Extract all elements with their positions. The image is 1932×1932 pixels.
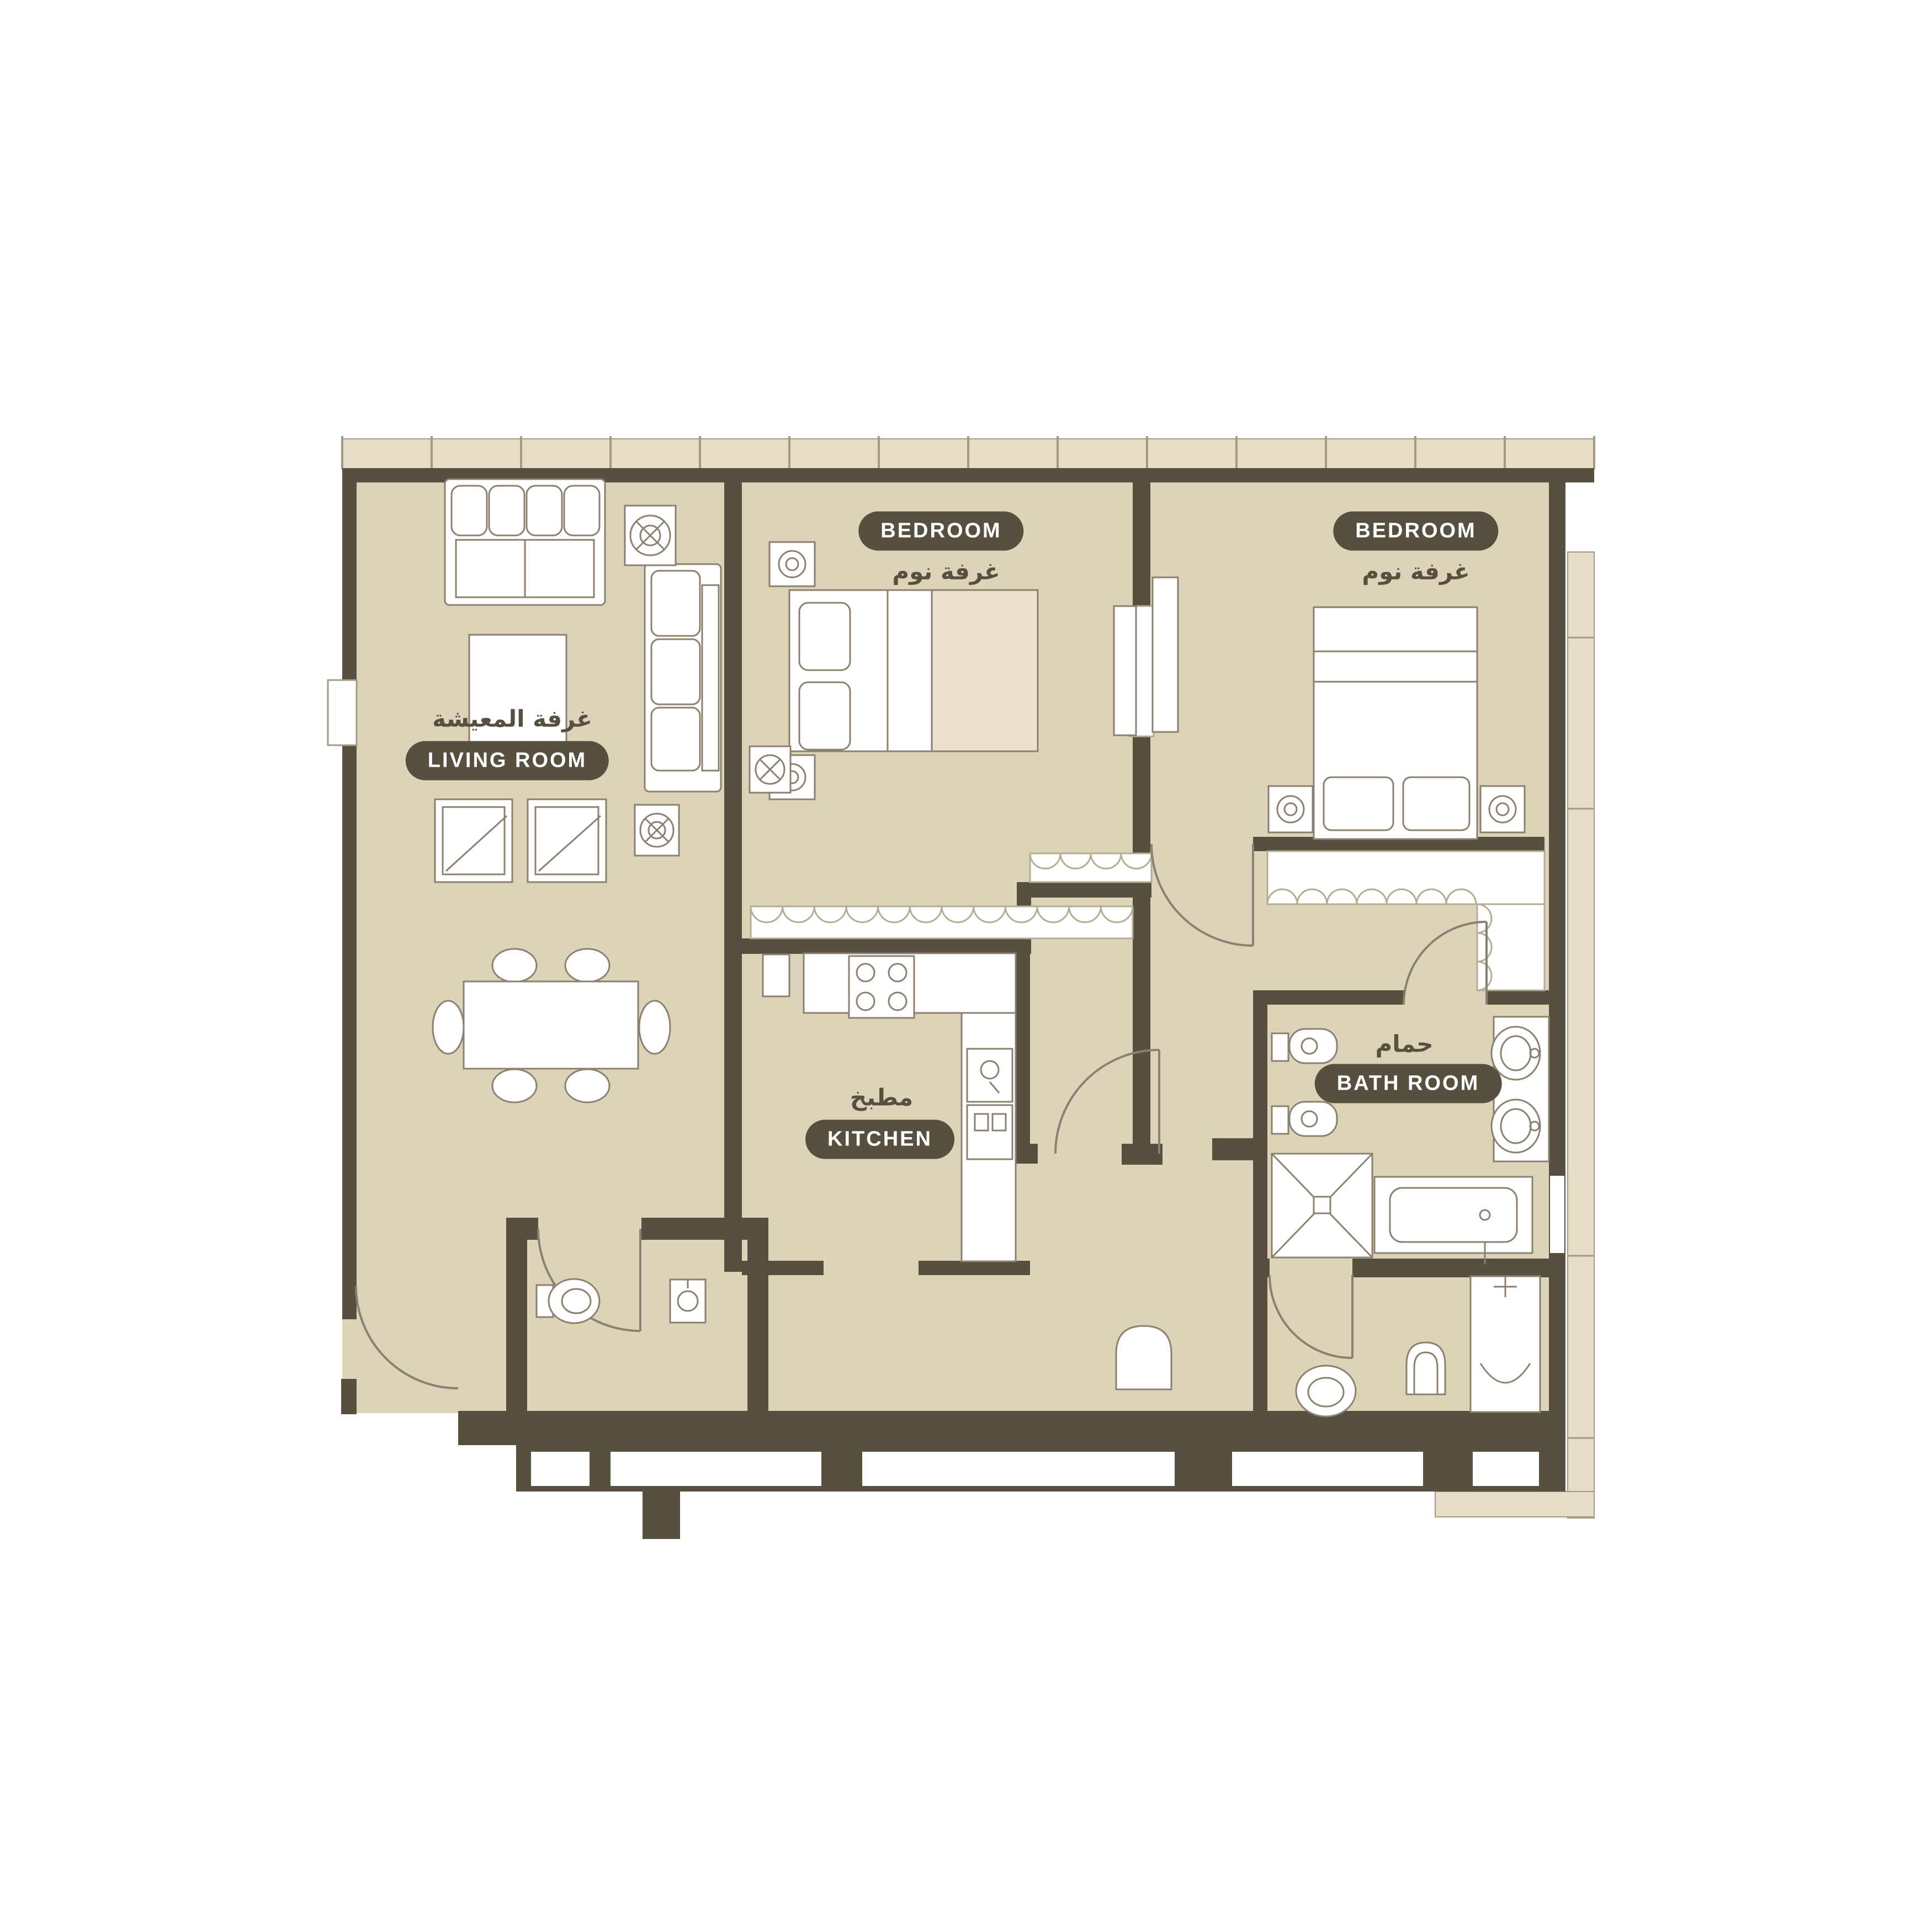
wall-hall-stub bbox=[1212, 1138, 1254, 1160]
wall-bedroom1-bottom-west bbox=[742, 938, 1031, 954]
armchair bbox=[528, 799, 606, 882]
toilet-icon bbox=[1272, 1029, 1337, 1063]
wall-bottom-step bbox=[643, 1492, 680, 1539]
bedroom1-label-arabic: غرفة نوم bbox=[892, 558, 1000, 585]
sofa-side bbox=[645, 564, 721, 792]
wall-bath-top-a bbox=[1253, 990, 1404, 1005]
top-window-band bbox=[342, 436, 1594, 469]
bathroom-window bbox=[1550, 1176, 1564, 1253]
bed bbox=[789, 590, 1038, 751]
kitchen-label-pill: KITCHEN bbox=[805, 1120, 954, 1159]
wall-left bbox=[342, 468, 357, 1319]
shower-icon bbox=[1272, 1154, 1372, 1257]
bed bbox=[1314, 607, 1477, 839]
hall-niche bbox=[1116, 1326, 1171, 1389]
floor-plan-drawing bbox=[0, 0, 1932, 1932]
bedroom2-closet-horizontal bbox=[1267, 851, 1544, 904]
dresser bbox=[1114, 606, 1136, 735]
wall-kitchen-bottom-b bbox=[919, 1261, 1030, 1275]
wc-sink-icon bbox=[670, 1280, 705, 1323]
wall-bath-bottom-a bbox=[1253, 1259, 1270, 1277]
wall-bath-left bbox=[1253, 990, 1267, 1413]
wall-wc-left bbox=[506, 1218, 527, 1413]
left-wall-notch bbox=[328, 680, 357, 745]
toilet-icon bbox=[1406, 1342, 1445, 1394]
nightstand bbox=[1268, 786, 1313, 832]
sink-icon bbox=[1492, 1100, 1540, 1153]
dining-table bbox=[464, 981, 638, 1069]
bathroom-label-pill: BATH ROOM bbox=[1315, 1064, 1502, 1103]
nightstand bbox=[769, 542, 815, 586]
wall-hall-cap bbox=[1122, 1144, 1163, 1165]
wall-kitchen-right bbox=[1016, 954, 1030, 1148]
plant-icon bbox=[635, 805, 679, 856]
bathroom-label-arabic: حمام bbox=[1376, 1031, 1434, 1058]
bedroom1-label-pill: BEDROOM bbox=[858, 512, 1023, 551]
dresser bbox=[1153, 577, 1178, 732]
shower-stall-icon bbox=[1471, 1276, 1540, 1412]
wall-bath-bottom-b bbox=[1352, 1259, 1565, 1277]
fridge bbox=[763, 954, 789, 996]
kitchen-label-arabic: مطبخ bbox=[850, 1084, 913, 1111]
floor-plan-page: BEDROOM غرفة نوم BEDROOM غرفة نوم غرفة ا… bbox=[0, 0, 1932, 1932]
wall-bedroom1-bottom-east bbox=[1017, 882, 1151, 898]
sofa-top bbox=[445, 479, 605, 605]
nightstand bbox=[1480, 786, 1525, 832]
wall-bottom bbox=[458, 1411, 1565, 1445]
wall-bath-top-b bbox=[1487, 990, 1549, 1005]
bottom-windows bbox=[531, 1452, 1539, 1486]
wall-living-divider bbox=[724, 468, 742, 1272]
bidet-icon bbox=[1272, 1102, 1337, 1136]
coffee-table bbox=[469, 635, 566, 752]
pedestal-sink-icon bbox=[1296, 1366, 1356, 1416]
sink-icon bbox=[1492, 1027, 1540, 1080]
armchair bbox=[435, 799, 512, 882]
plant-icon bbox=[625, 506, 676, 565]
bedroom2-label-arabic: غرفة نوم bbox=[1362, 558, 1469, 585]
bedroom2-label-pill: BEDROOM bbox=[1333, 512, 1498, 551]
bathtub-icon bbox=[1374, 1177, 1532, 1264]
wall-wc-right bbox=[747, 1218, 768, 1413]
wall-left-stub bbox=[341, 1379, 357, 1414]
plant-icon bbox=[750, 746, 790, 793]
living-label-arabic: غرفة المعيشة bbox=[432, 705, 592, 733]
living-label-pill: LIVING ROOM bbox=[406, 741, 609, 781]
stove-icon bbox=[849, 956, 914, 1018]
wall-bedroom-divider bbox=[1133, 468, 1150, 1163]
toilet-icon bbox=[537, 1279, 599, 1323]
